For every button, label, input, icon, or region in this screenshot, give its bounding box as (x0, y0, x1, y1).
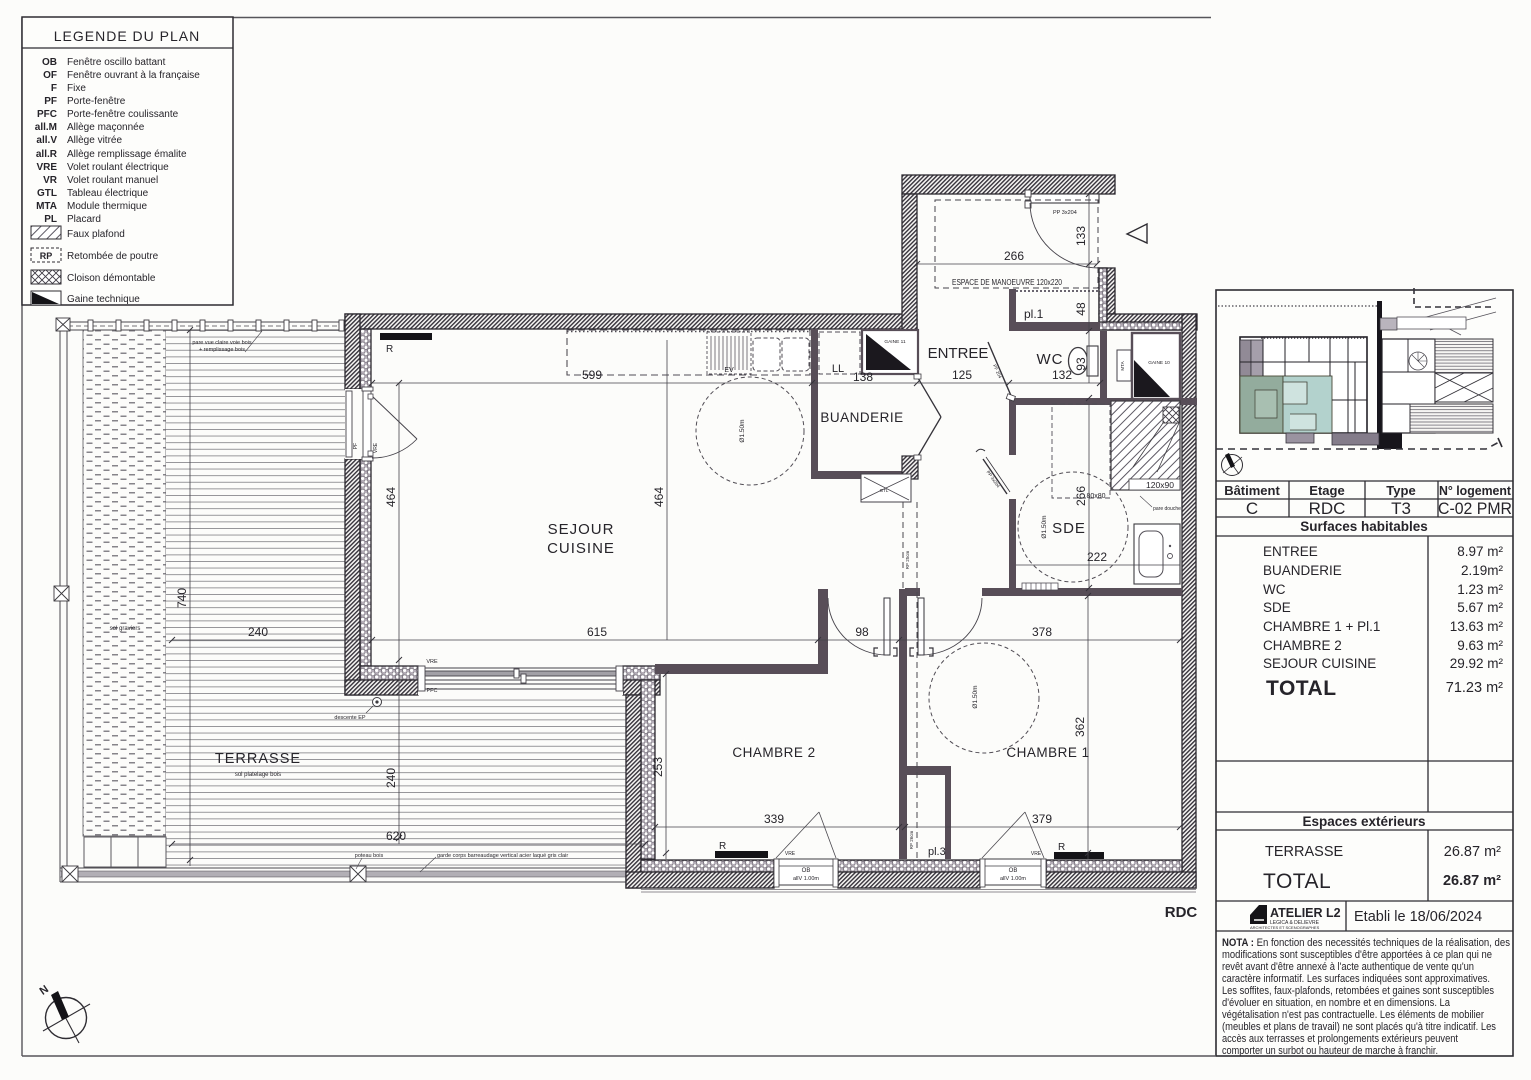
svg-text:ENTREE: ENTREE (928, 345, 989, 362)
svg-text:sol graviers: sol graviers (110, 626, 141, 632)
svg-text:RP 25cm: RP 25cm (905, 551, 910, 570)
svg-text:29.92 m²: 29.92 m² (1450, 656, 1504, 671)
svg-text:CHAMBRE 2: CHAMBRE 2 (732, 745, 815, 760)
svg-text:VRE: VRE (36, 162, 57, 173)
svg-text:Surfaces habitables: Surfaces habitables (1300, 519, 1428, 534)
svg-text:615: 615 (587, 625, 607, 639)
svg-text:GAINE 10: GAINE 10 (1148, 360, 1170, 366)
svg-text:Module thermique: Module thermique (67, 201, 147, 212)
svg-text:620: 620 (386, 829, 406, 843)
svg-text:VRE: VRE (426, 659, 438, 665)
svg-text:Porte-fenêtre: Porte-fenêtre (67, 96, 126, 107)
svg-text:N: N (38, 983, 51, 997)
svg-text:253: 253 (651, 757, 665, 777)
svg-text:5.67 m²: 5.67 m² (1457, 600, 1503, 615)
svg-text:ENTREE: ENTREE (1263, 544, 1318, 559)
svg-text:EV: EV (724, 367, 734, 374)
svg-text:VRE: VRE (785, 851, 796, 857)
svg-text:caractère informatif. Les surf: caractère informatif. Les surfaces indiq… (1222, 973, 1490, 985)
svg-text:OB: OB (1009, 868, 1018, 874)
svg-text:BUANDERIE: BUANDERIE (820, 410, 903, 425)
svg-text:599: 599 (582, 368, 602, 382)
svg-text:Volet roulant manuel: Volet roulant manuel (67, 175, 158, 186)
svg-text:pl.1: pl.1 (1024, 307, 1044, 321)
svg-text:(meubles et plans de travail): (meubles et plans de travail) ne sont pl… (1222, 1021, 1496, 1033)
svg-text:CHAMBRE 2: CHAMBRE 2 (1263, 638, 1342, 653)
svg-text:WC: WC (1263, 582, 1286, 597)
svg-text:OB: OB (802, 868, 811, 874)
svg-text:Ø1.50m: Ø1.50m (1041, 515, 1048, 538)
svg-text:modifications sont susceptible: modifications sont susceptibles d'être a… (1222, 949, 1492, 961)
svg-text:SEJOUR: SEJOUR (548, 521, 615, 538)
svg-text:BUANDERIE: BUANDERIE (1263, 563, 1342, 578)
svg-text:Cloison démontable: Cloison démontable (67, 273, 156, 284)
svg-text:TOTAL: TOTAL (1263, 870, 1331, 893)
svg-text:240: 240 (384, 768, 398, 788)
svg-text:1.23 m²: 1.23 m² (1457, 582, 1503, 597)
svg-text:Retombée de poutre: Retombée de poutre (67, 251, 159, 262)
svg-text:C-02 PMR: C-02 PMR (1438, 499, 1512, 518)
svg-text:PL: PL (44, 214, 57, 225)
svg-text:379: 379 (1032, 812, 1052, 826)
svg-text:138: 138 (853, 370, 873, 384)
svg-text:Fixe: Fixe (67, 83, 86, 94)
svg-text:13.63 m²: 13.63 m² (1450, 619, 1504, 634)
svg-text:339: 339 (764, 812, 784, 826)
svg-text:Placard: Placard (67, 214, 101, 225)
svg-text:accès aux terrasses et prolong: accès aux terrasses et prolongements ext… (1222, 1033, 1458, 1045)
svg-text:GTL: GTL (37, 188, 57, 199)
svg-text:Faux plafond: Faux plafond (67, 229, 125, 240)
svg-text:TERRASSE: TERRASSE (215, 751, 301, 767)
svg-text:Ø1.50m: Ø1.50m (739, 419, 746, 442)
svg-text:pl.3: pl.3 (928, 846, 946, 858)
svg-text:132: 132 (1052, 368, 1072, 382)
svg-text:Bâtiment: Bâtiment (1224, 483, 1280, 498)
svg-text:2.19m²: 2.19m² (1461, 563, 1504, 578)
svg-text:TERRASSE: TERRASSE (1265, 844, 1343, 860)
svg-text:PFC: PFC (427, 688, 438, 694)
svg-text:PF: PF (44, 96, 57, 107)
svg-text:RP: RP (40, 251, 53, 261)
svg-text:VRE: VRE (1031, 851, 1042, 857)
svg-text:Etabli le 18/06/2024: Etabli le 18/06/2024 (1354, 909, 1482, 925)
svg-text:ESPACE DE MANOEUVRE 120x220: ESPACE DE MANOEUVRE 120x220 (952, 278, 1062, 287)
svg-text:SDE: SDE (1052, 520, 1086, 537)
svg-text:all.V: all.V (36, 135, 57, 146)
svg-text:all.R: all.R (36, 149, 58, 160)
svg-text:PP 3x204: PP 3x204 (1053, 210, 1077, 216)
svg-text:R: R (1058, 842, 1065, 853)
svg-text:362: 362 (1073, 717, 1087, 737)
svg-text:poteau bois: poteau bois (355, 853, 384, 859)
svg-text:R: R (386, 344, 393, 355)
svg-text:C: C (1246, 499, 1258, 518)
svg-text:Gaine technique: Gaine technique (67, 294, 140, 305)
svg-text:26.87 m²: 26.87 m² (1443, 873, 1501, 889)
svg-text:266: 266 (1074, 486, 1088, 506)
svg-text:Fenêtre ouvrant à la française: Fenêtre ouvrant à la française (67, 70, 200, 81)
svg-text:8.97 m²: 8.97 m² (1457, 544, 1503, 559)
svg-text:133: 133 (1074, 226, 1088, 246)
svg-text:d'évoluer en situation, en nom: d'évoluer en situation, en nombre et en … (1222, 997, 1451, 1009)
svg-text:464: 464 (384, 487, 398, 507)
svg-text:Tableau électrique: Tableau électrique (67, 188, 149, 199)
svg-text:TOTAL: TOTAL (1266, 677, 1337, 700)
svg-text:Allège remplissage émalite: Allège remplissage émalite (67, 149, 187, 160)
svg-text:PF 204: PF 204 (992, 364, 1003, 380)
svg-text:pare vue claire voie bois: pare vue claire voie bois (192, 340, 252, 346)
svg-text:descente EP: descente EP (334, 715, 366, 721)
svg-text:222: 222 (1087, 550, 1107, 564)
svg-text:48: 48 (1074, 302, 1088, 316)
svg-text:SDE: SDE (1263, 600, 1291, 615)
svg-text:GAINE 11: GAINE 11 (884, 339, 906, 345)
svg-text:378: 378 (1032, 625, 1052, 639)
svg-text:VR: VR (43, 175, 58, 186)
svg-text:120x90: 120x90 (1146, 480, 1174, 490)
svg-text:Etage: Etage (1309, 483, 1344, 498)
svg-text:LEGENDE DU PLAN: LEGENDE DU PLAN (54, 28, 200, 44)
svg-text:Allège maçonnée: Allège maçonnée (67, 122, 145, 133)
svg-text:MTA: MTA (1120, 361, 1125, 370)
svg-text:ATELIER L2: ATELIER L2 (1270, 906, 1341, 920)
svg-text:464: 464 (652, 487, 666, 507)
svg-text:GTL: GTL (880, 488, 889, 493)
svg-text:CHAMBRE 1: CHAMBRE 1 (1006, 745, 1089, 760)
svg-text:Porte-fenêtre coulissante: Porte-fenêtre coulissante (67, 109, 179, 120)
svg-text:VRE: VRE (373, 442, 379, 453)
svg-text:Fenêtre oscillo battant: Fenêtre oscillo battant (67, 57, 166, 68)
svg-text:CHAMBRE 1 + Pl.1: CHAMBRE 1 + Pl.1 (1263, 619, 1380, 634)
svg-text:+ remplissage bois: + remplissage bois (199, 347, 245, 353)
svg-text:végétalisation n'est pas contr: végétalisation n'est pas contractuelle. … (1222, 1009, 1484, 1021)
svg-text:T3: T3 (1391, 499, 1411, 518)
svg-text:pare douche: pare douche (1153, 506, 1181, 512)
svg-text:Type: Type (1386, 483, 1415, 498)
svg-text:MTA: MTA (36, 201, 57, 212)
svg-text:OB: OB (42, 57, 57, 68)
svg-text:PP 3x204: PP 3x204 (986, 470, 1002, 489)
svg-text:LL: LL (832, 363, 844, 375)
svg-text:sol platelage bois: sol platelage bois (235, 772, 281, 778)
svg-text:Ø1.50m: Ø1.50m (972, 685, 979, 708)
svg-text:R: R (719, 841, 726, 852)
svg-text:PF: PF (353, 443, 359, 449)
svg-text:740: 740 (175, 588, 189, 608)
svg-text:comporter un surbot ou hauteur: comporter un surbot ou hauteur de marche… (1222, 1045, 1438, 1057)
svg-text:71.23 m²: 71.23 m² (1446, 680, 1503, 696)
svg-text:PFC: PFC (37, 109, 57, 120)
svg-text:240: 240 (248, 625, 268, 639)
svg-text:Espaces extérieurs: Espaces extérieurs (1302, 814, 1425, 829)
svg-text:Les soffites, faux-plafonds, r: Les soffites, faux-plafonds, retombées e… (1222, 985, 1494, 997)
svg-text:SEJOUR CUISINE: SEJOUR CUISINE (1263, 656, 1376, 671)
svg-text:ARCHITECTES ET SCENOGRAPHES: ARCHITECTES ET SCENOGRAPHES (1250, 925, 1320, 930)
svg-text:NOTA : En fonction des necess: NOTA : En fonction des necessités techni… (1222, 937, 1510, 949)
svg-text:98: 98 (855, 625, 869, 639)
svg-text:26.87 m²: 26.87 m² (1444, 844, 1501, 860)
svg-text:allV 1.00m: allV 1.00m (1000, 876, 1026, 882)
svg-text:CUISINE: CUISINE (547, 540, 615, 557)
svg-text:125: 125 (952, 368, 972, 382)
svg-text:RP 26cm: RP 26cm (909, 831, 914, 850)
svg-text:all.M: all.M (35, 122, 57, 133)
svg-text:allV 1.00m: allV 1.00m (793, 876, 819, 882)
svg-text:Allège vitrée: Allège vitrée (67, 135, 122, 146)
svg-text:OF: OF (43, 70, 57, 81)
svg-text:9.63 m²: 9.63 m² (1457, 638, 1503, 653)
svg-text:93: 93 (1074, 357, 1088, 371)
svg-text:Volet roulant électrique: Volet roulant électrique (67, 162, 169, 173)
svg-text:RDC: RDC (1165, 904, 1198, 921)
svg-text:N° logement: N° logement (1439, 483, 1512, 498)
svg-text:RDC: RDC (1309, 499, 1346, 518)
svg-text:garde corps barreaudage vertic: garde corps barreaudage vertical acier l… (437, 853, 568, 859)
svg-text:266: 266 (1004, 249, 1024, 263)
svg-text:revêt avant d'être annexé à l': revêt avant d'être annexé à l'acte authe… (1222, 961, 1474, 973)
svg-text:WC: WC (1037, 351, 1064, 368)
svg-text:F: F (51, 83, 57, 94)
